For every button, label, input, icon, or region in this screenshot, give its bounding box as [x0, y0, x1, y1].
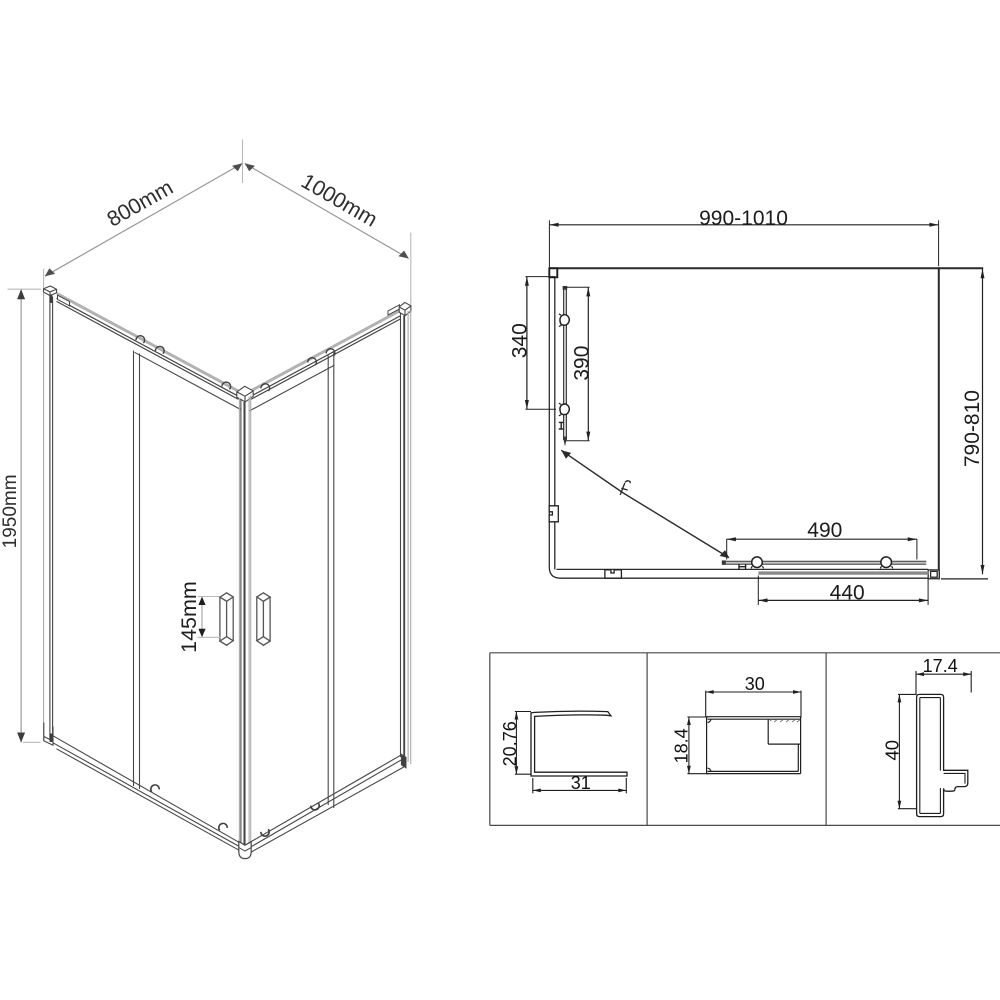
svg-text:20.76: 20.76 [500, 721, 520, 766]
svg-text:440: 440 [830, 582, 865, 605]
svg-text:30: 30 [745, 674, 765, 694]
svg-text:790-810: 790-810 [961, 390, 984, 467]
svg-text:990-1010: 990-1010 [699, 207, 788, 230]
svg-text:31: 31 [571, 773, 591, 793]
svg-text:145mm: 145mm [177, 581, 201, 653]
svg-text:40: 40 [882, 740, 903, 761]
svg-text:18.4: 18.4 [672, 728, 692, 763]
svg-text:490: 490 [807, 519, 842, 542]
svg-text:340: 340 [508, 323, 531, 358]
svg-text:1950mm: 1950mm [0, 474, 21, 548]
svg-text:17.4: 17.4 [923, 656, 958, 676]
svg-text:390: 390 [570, 346, 593, 381]
